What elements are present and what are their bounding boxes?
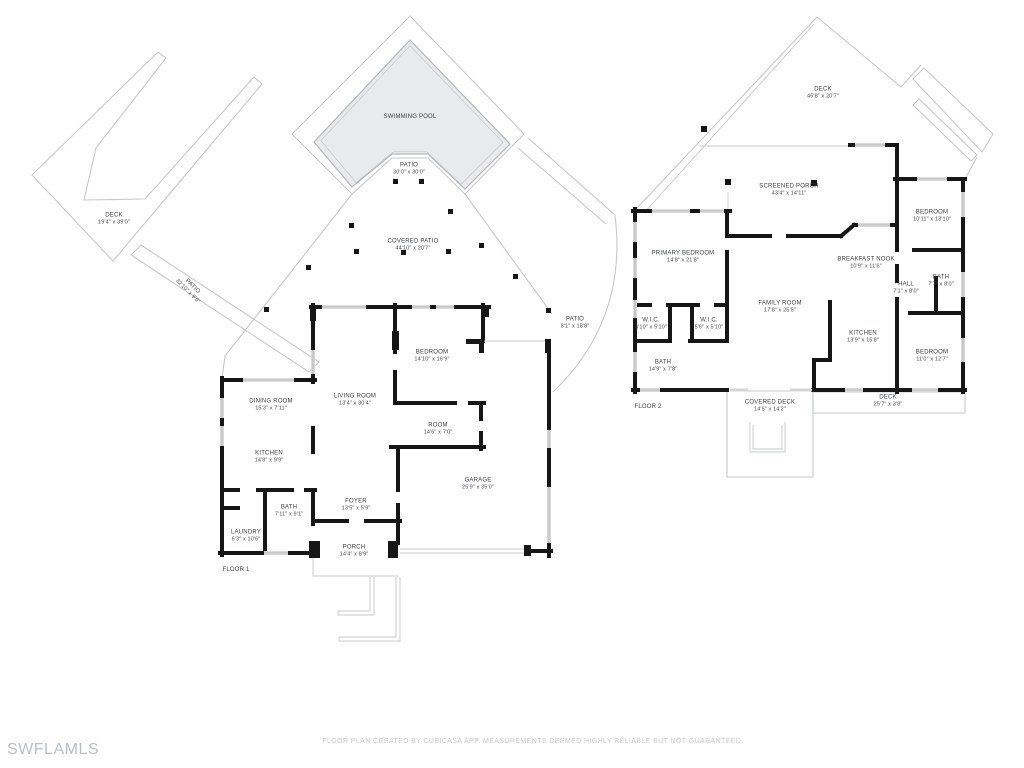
room-label-family-room-f2-6: FAMILY ROOM17'8" x 25'5" [758, 301, 801, 314]
room-label-bath-f1-12: BATH7'11" x 9'1" [275, 505, 303, 518]
room-label-bath-f2-9: BATH7'7" x 8'0" [928, 275, 954, 288]
room-label-w-i-c-f2-4: W.I.C.5'6" x 5'10" [695, 318, 724, 331]
room-label-kitchen-f1-8: KITCHEN14'8" x 9'9" [255, 451, 284, 464]
room-label-foyer-f1-13: FOYER13'5" x 5'9" [342, 499, 371, 512]
floor1-windows [222, 307, 549, 553]
room-label-covered-deck-f2-13: COVERED DECK14'5" x 14'2" [745, 400, 795, 413]
room-label-patio-f1-5: PATIO8'1" x 18'8" [561, 317, 590, 330]
room-label-bedroom-f1-9: BEDROOM14'10" x 16'9" [414, 350, 449, 363]
room-label-kitchen-f2-11: KITCHEN13'9" x 15'8" [847, 331, 879, 344]
room-label-screened-porch-f2-1: SCREENED PORCH43'4" x 14'11" [759, 184, 818, 197]
room-label-bath-f2-5: BATH14'9" x 7'8" [649, 360, 678, 373]
room-label-w-i-c-f2-3: W.I.C.4'10" x 5'10" [635, 318, 667, 331]
room-label-deck-f1-0: DECK19'4" x 39'0" [98, 213, 130, 226]
patio-curve [553, 215, 617, 392]
floor-tag-floor-1: FLOOR 1 [222, 567, 250, 573]
watermark-swflamls: SWFLAMLS [7, 741, 99, 759]
room-label-patio-f1-4: PATIO32'10" x 9'6" [174, 273, 206, 305]
floor-plan-canvas: DECK19'4" x 39'0"SWIMMING POOLPATIO30'0"… [0, 0, 1024, 768]
room-label-porch-f1-15: PORCH14'4" x 8'9" [340, 545, 369, 558]
room-label-room-f1-10: ROOM14'6" x 7'0" [424, 423, 453, 436]
floor-tag-floor-2: FLOOR 2 [634, 404, 662, 410]
patio-strip-outline [131, 245, 319, 372]
room-label-bedroom-f2-8: BEDROOM10'11" x 13'10" [913, 210, 951, 223]
floor-plan-page: { "watermark": "SWFLAMLS", "footer": "FL… [0, 0, 1024, 768]
room-label-breakfast-nook-f2-7: BREAKFAST NOOK10'9" x 11'6" [837, 257, 894, 270]
room-label-deck-f2-0: DECK46'8" x 20'7" [807, 87, 839, 100]
room-label-living-room-f1-7: LIVING ROOM13'4" x 30'4" [334, 394, 376, 407]
room-label-patio-f1-2: PATIO30'0" x 30'0" [393, 163, 425, 176]
room-label-covered-patio-f1-3: COVERED PATIO44'10" x 20'7" [387, 239, 438, 252]
room-label-dining-room-f1-6: DINING ROOM15'3" x 7'11" [249, 399, 293, 412]
room-label-laundry-f1-14: LAUNDRY6'3" x 10'6" [231, 530, 261, 543]
room-label-bedroom-f2-12: BEDROOM11'0" x 12'7" [916, 350, 948, 363]
room-label-hall-f2-10: HALL7'1" x 8'0" [893, 282, 919, 295]
deck-outline [32, 52, 262, 261]
room-label-deck-f2-14: DECK25'7" x 3'8" [874, 395, 903, 408]
room-label-garage-f1-11: GARAGE25'9" x 35'0" [462, 478, 494, 491]
floor2-windows [635, 145, 963, 391]
room-labels-layer: DECK19'4" x 39'0"SWIMMING POOLPATIO30'0"… [98, 87, 954, 574]
disclaimer-text: FLOOR PLAN CREATED BY CUBICASA APP. MEAS… [322, 738, 743, 745]
room-label-swimming-pool-f1-1: SWIMMING POOL [384, 114, 437, 120]
floor1-walls [220, 305, 551, 556]
room-label-primary-bedroom-f2-2: PRIMARY BEDROOM14'8" x 21'8" [652, 251, 715, 264]
floor2-porch-posts [701, 126, 817, 186]
deck2-outline [637, 17, 921, 208]
